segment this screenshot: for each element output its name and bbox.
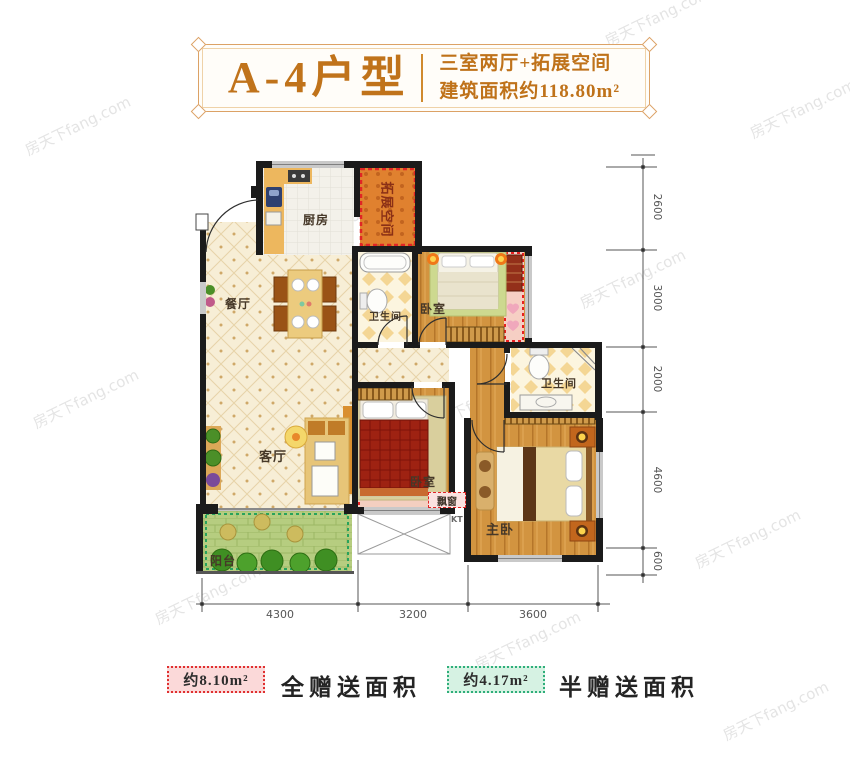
dim-right-3000: 3000 <box>651 276 663 320</box>
room-label-bedroom2: 卧室 <box>420 300 446 317</box>
room-label-bay-window: 飘窗 <box>437 493 457 508</box>
dim-bottom-3200: 3200 <box>383 608 443 621</box>
dim-right-2000: 2000 <box>651 357 663 401</box>
room-label-bedroom1: 卧室 <box>410 473 436 490</box>
room-label-living: 客厅 <box>259 446 287 465</box>
dim-bottom-4300: 4300 <box>250 608 310 621</box>
bay-window-label-box: 飘窗 <box>428 492 466 508</box>
room-label-bathroom1: 卫生间 <box>369 308 402 323</box>
floorplan-page: 房天下fang.com 房天下fang.com 房天下fang.com 房天下f… <box>0 0 850 773</box>
room-label-dining: 餐厅 <box>225 295 251 312</box>
legend-half-gift-area-box: 约4.17m² <box>447 666 545 693</box>
room-label-expansion: 拓展空间 <box>379 175 398 245</box>
dim-bottom-3600: 3600 <box>503 608 563 621</box>
floor-plan-drawing <box>0 0 850 773</box>
legend-full-gift-label: 全赠送面积 <box>281 668 421 702</box>
legend-half-gift-label: 半赠送面积 <box>559 668 699 702</box>
ac-platform <box>358 514 450 554</box>
dim-right-600: 600 <box>651 539 663 583</box>
legend-half-gift-area-value: 约4.17m² <box>463 669 528 690</box>
room-label-kitchen: 厨房 <box>303 211 329 228</box>
legend-full-gift-area-value: 约8.10m² <box>183 669 248 690</box>
dim-right-2600: 2600 <box>651 185 663 229</box>
kt-label: KT <box>451 515 463 524</box>
dim-right-4600: 4600 <box>651 458 663 502</box>
room-label-bathroom2: 卫生间 <box>541 375 577 391</box>
legend-full-gift-area-box: 约8.10m² <box>167 666 265 693</box>
room-label-master: 主卧 <box>486 519 514 538</box>
room-label-balcony: 阳台 <box>210 552 236 569</box>
